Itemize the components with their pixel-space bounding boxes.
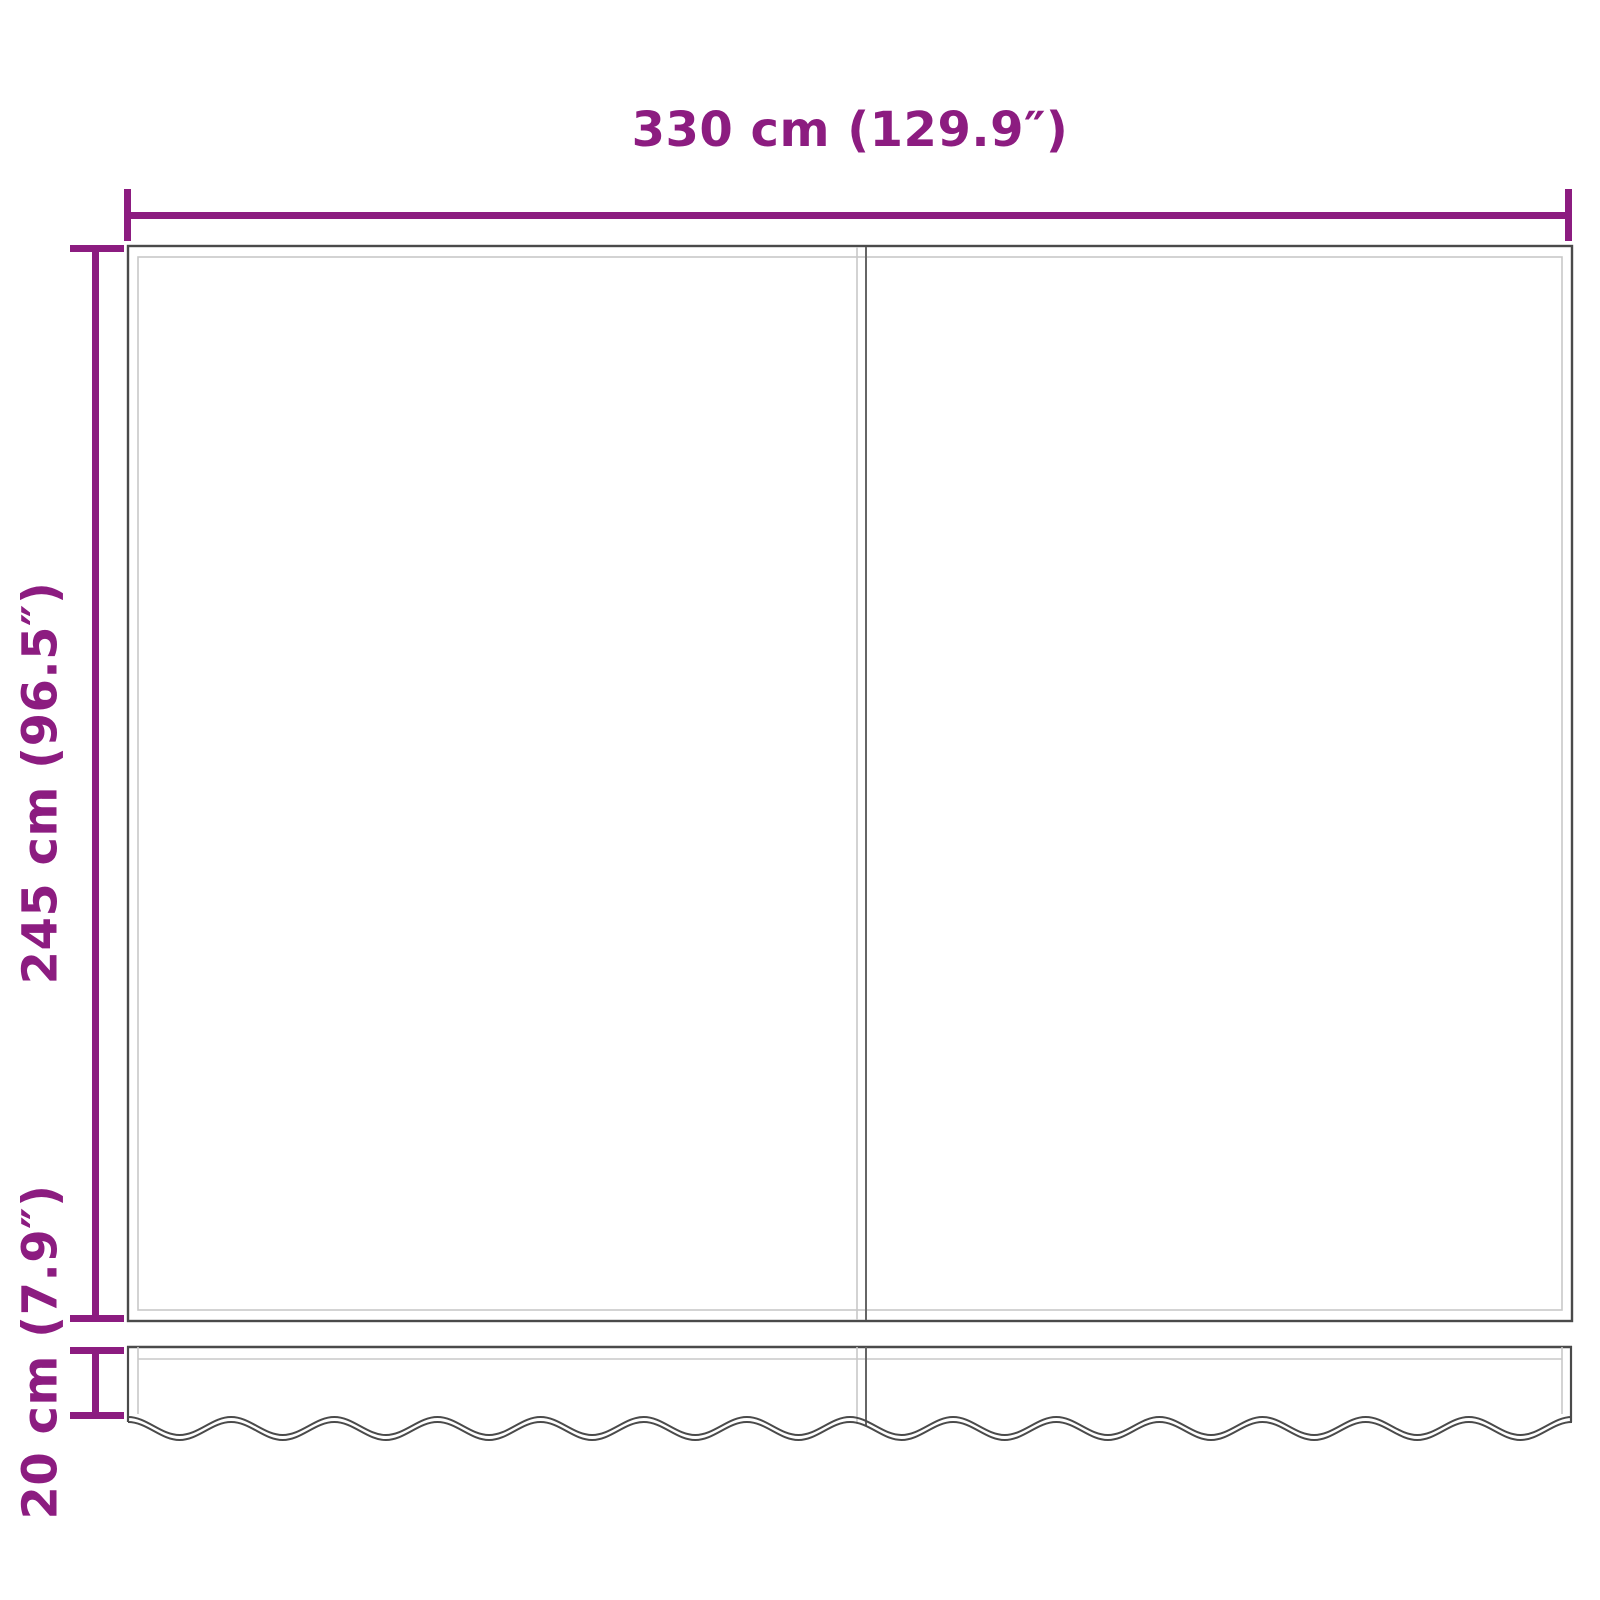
width-dimension-tick-right [1565, 189, 1572, 241]
valance-dimension-line [92, 1350, 99, 1416]
height-dimension-tick-bottom [70, 1315, 124, 1322]
width-dimension-label: 330 cm (129.9″) [128, 103, 1572, 158]
valance-scallop-edge-lower [128, 1422, 1572, 1440]
valance-height-dimension-label: 20 cm (7.9″) [13, 1184, 68, 1519]
height-dimension-tick-top [70, 245, 124, 252]
width-dimension-tick-left [124, 189, 131, 241]
fabric-panel [128, 246, 1572, 1321]
valance-dimension-tick-top [70, 1347, 124, 1354]
width-dimension [124, 189, 1572, 241]
fabric-outline [128, 246, 1572, 1321]
valance-scallop-edge-upper [128, 1417, 1572, 1435]
valance-dimension-tick-bottom [70, 1412, 124, 1419]
height-dimension [70, 245, 124, 1322]
awning-fabric-dimension-diagram: 330 cm (129.9″) 245 cm (96.5″) 20 cm (7.… [0, 0, 1600, 1600]
diagram-linework [0, 0, 1600, 1600]
width-dimension-line [124, 212, 1572, 219]
height-dimension-label: 245 cm (96.5″) [13, 582, 68, 985]
valance-height-dimension [70, 1347, 124, 1419]
height-dimension-line [92, 246, 99, 1318]
valance-strip [127, 1346, 1572, 1440]
